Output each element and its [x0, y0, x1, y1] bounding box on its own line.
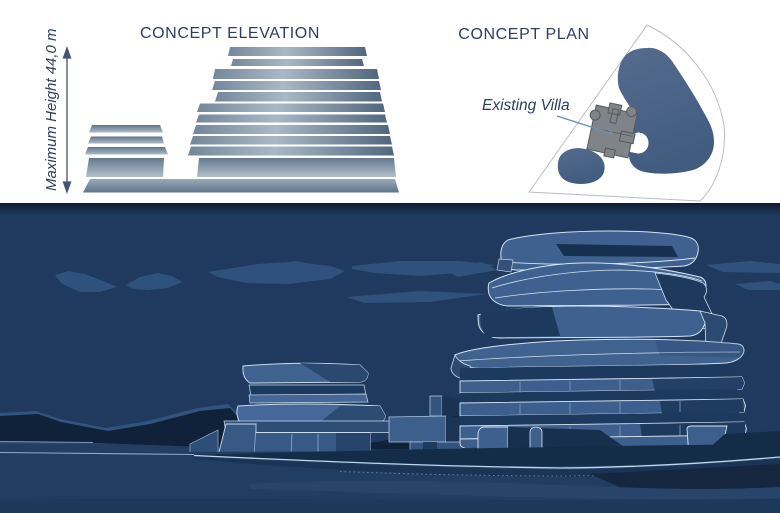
- svg-text:CONCEPT ELEVATION: CONCEPT ELEVATION: [140, 25, 320, 42]
- svg-text:Existing Villa: Existing Villa: [482, 97, 570, 114]
- svg-text:CONCEPT PLAN: CONCEPT PLAN: [458, 26, 589, 43]
- svg-text:Maximum Height 44,0 m: Maximum Height 44,0 m: [43, 28, 60, 191]
